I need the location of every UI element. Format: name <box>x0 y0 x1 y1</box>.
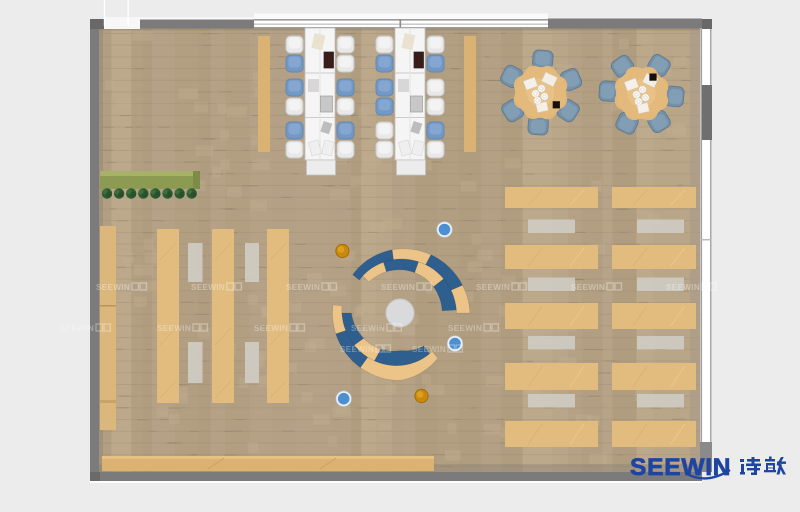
svg-text:SEEWIN: SEEWIN <box>60 324 94 333</box>
svg-text:SEEWIN: SEEWIN <box>571 283 605 292</box>
svg-text:SEEWIN: SEEWIN <box>254 324 288 333</box>
svg-text:SEEWIN: SEEWIN <box>157 324 191 333</box>
svg-text:SEEWIN: SEEWIN <box>286 283 320 292</box>
svg-text:SEEWIN: SEEWIN <box>351 324 385 333</box>
svg-text:SEEWIN: SEEWIN <box>340 345 374 354</box>
svg-text:SEEWIN: SEEWIN <box>381 283 415 292</box>
svg-text:SEEWIN: SEEWIN <box>412 345 446 354</box>
svg-text:SEEWIN: SEEWIN <box>191 283 225 292</box>
svg-text:SEEWIN: SEEWIN <box>96 283 130 292</box>
svg-text:SEEWIN: SEEWIN <box>666 283 700 292</box>
svg-text:SEEWIN: SEEWIN <box>448 324 482 333</box>
svg-text:SEEWIN: SEEWIN <box>476 283 510 292</box>
